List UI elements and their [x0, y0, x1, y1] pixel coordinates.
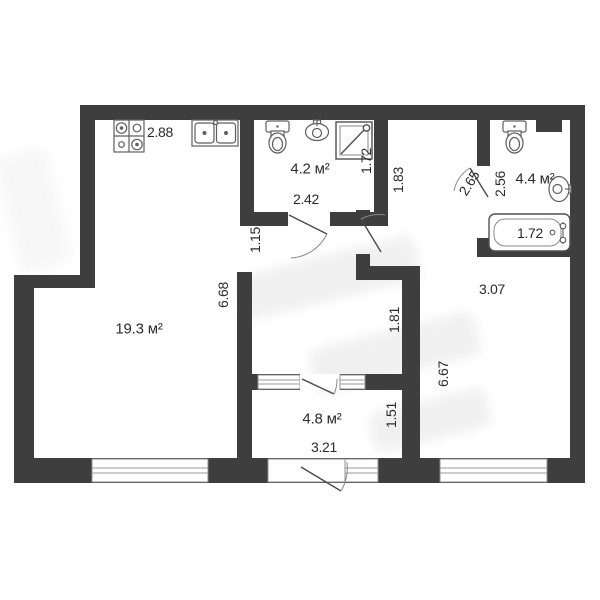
- dim-bath-small-width: 2.42: [293, 191, 319, 207]
- toilet-icon: [266, 121, 289, 153]
- dim-loggia-width: 3.21: [311, 439, 337, 455]
- dim-hall-entry: 1.83: [390, 167, 406, 193]
- window: [92, 459, 208, 482]
- dim-loggia-depth: 1.51: [383, 402, 399, 428]
- toilet-icon: [503, 121, 526, 153]
- washbasin-icon: [306, 120, 329, 141]
- area-label-loggia: 4.8 м²: [302, 411, 341, 428]
- door-swing-hall: [361, 215, 385, 252]
- area-label-bath-small: 4.2 м²: [290, 161, 329, 178]
- floor-plan: 2.88 4.2 м² 2.42 1.72 1.83 2.65 2.56 4.4…: [0, 0, 600, 600]
- stove-icon: [114, 120, 144, 152]
- dim-kitchen-width: 2.88: [147, 124, 173, 140]
- dim-room-right-height: 6.67: [435, 361, 451, 387]
- plan-graphics: [0, 0, 600, 600]
- dim-bath-large-depth: 2.56: [492, 171, 508, 197]
- dim-hall-lower: 1.81: [386, 307, 402, 333]
- door-swing-bath-small: [289, 215, 327, 258]
- dim-passage-width: 1.15: [247, 227, 263, 253]
- window: [345, 459, 378, 482]
- window: [340, 375, 365, 389]
- kitchen-sink-icon: [192, 120, 238, 146]
- dim-studio-height: 6.68: [215, 282, 231, 308]
- window: [258, 375, 300, 389]
- dim-room-right-width: 3.07: [479, 281, 505, 297]
- dim-bathtub-length: 1.72: [517, 225, 543, 241]
- area-label-studio: 19.3 м²: [115, 321, 162, 338]
- window: [440, 459, 547, 482]
- area-label-bath-large: 4.4 м²: [515, 171, 554, 188]
- dim-bath-small-depth: 1.72: [358, 148, 374, 174]
